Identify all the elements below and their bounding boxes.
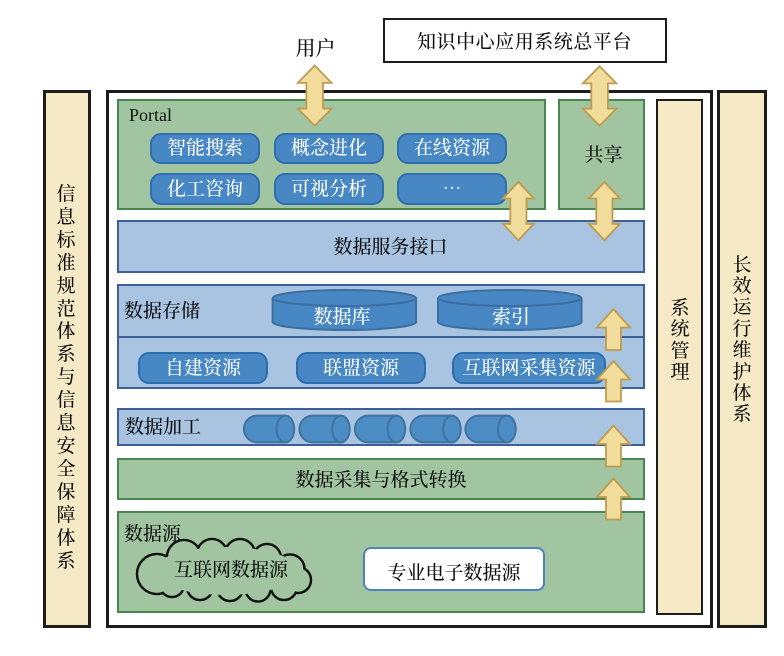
svg-text:互联网数据源: 互联网数据源	[174, 559, 289, 581]
svg-text:数据库: 数据库	[313, 306, 370, 328]
svg-text:索引: 索引	[491, 306, 530, 328]
